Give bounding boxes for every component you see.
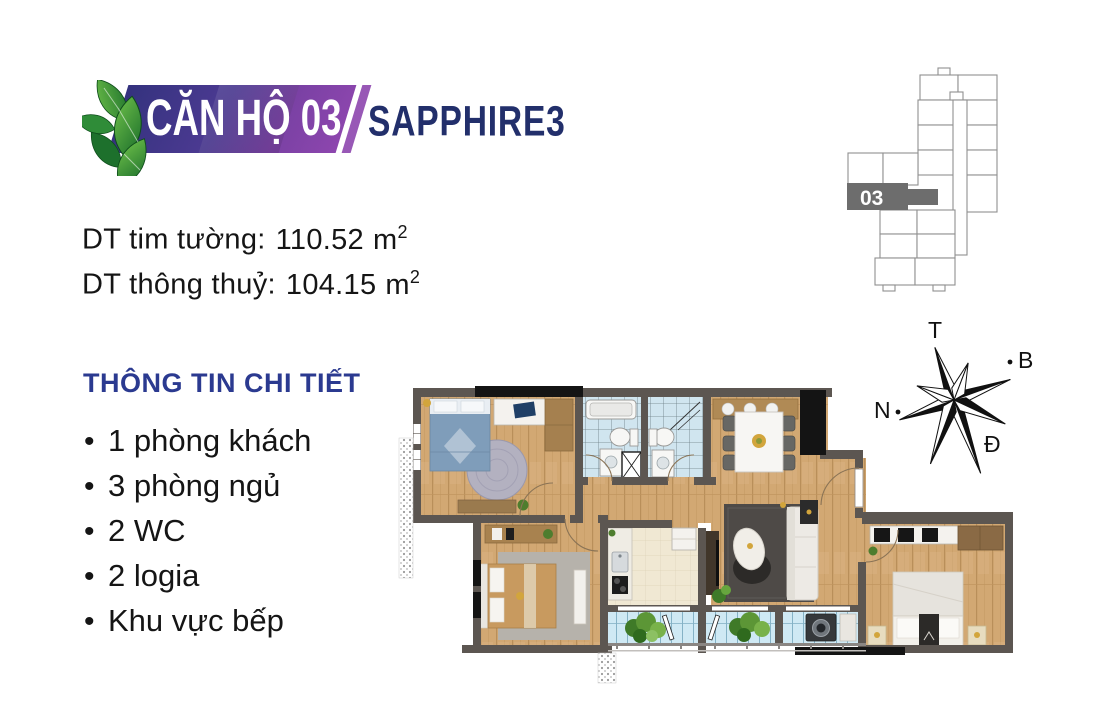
area-line-2: DT thông thuỷ:104.15m2 [82, 255, 420, 300]
hatch-pier [598, 653, 616, 683]
kitchen-black-column [800, 390, 826, 455]
area-line-1: DT tim tường:110.52m2 [82, 210, 420, 255]
laptop [513, 402, 536, 419]
low-cabinet [458, 500, 516, 513]
key-plan-units [848, 68, 997, 291]
compass-label-b: B [1018, 347, 1033, 373]
unit-03-label: 03 [860, 187, 883, 210]
details-list: •1 phòng khách •3 phòng ngủ •2 WC •2 log… [84, 418, 311, 643]
toilet [610, 428, 630, 446]
brochure-page: CĂN HỘ 03 SAPPHIRE3 DT tim tường:110.52m… [0, 0, 1102, 727]
bed-blue [430, 399, 490, 471]
details-heading: THÔNG TIN CHI TIẾT [83, 368, 360, 399]
bed-white [893, 572, 963, 648]
wardrobe-black-strip [475, 386, 583, 397]
list-item: •3 phòng ngủ [84, 463, 311, 508]
leaf-icon [82, 80, 174, 176]
compass-label-t: T [928, 317, 942, 343]
washing-machine [806, 614, 836, 641]
entrance-door [855, 469, 863, 507]
plant [609, 530, 616, 537]
cooktop [612, 576, 628, 594]
area-info: DT tim tường:110.52m2 DT thông thuỷ:104.… [82, 210, 420, 300]
wall-lamp [423, 399, 431, 407]
list-item: •1 phòng khách [84, 418, 311, 463]
hatch-strip [399, 438, 413, 578]
wardrobe [958, 526, 1003, 550]
list-item: •Khu vực bếp [84, 598, 311, 643]
key-plan-unit-03: 03 [847, 183, 938, 210]
list-item: •2 WC [84, 508, 311, 553]
plant [543, 529, 553, 539]
building-key-plan: 03 [838, 56, 1050, 308]
building-name: SAPPHIRE3 [368, 84, 566, 153]
dresser [574, 570, 586, 624]
shelf [840, 614, 856, 641]
floor-plan [396, 378, 1044, 690]
bed-tan [480, 564, 556, 628]
floor-lamp [780, 502, 786, 508]
shaft [622, 452, 641, 479]
plant [869, 547, 878, 556]
list-item: •2 logia [84, 553, 311, 598]
